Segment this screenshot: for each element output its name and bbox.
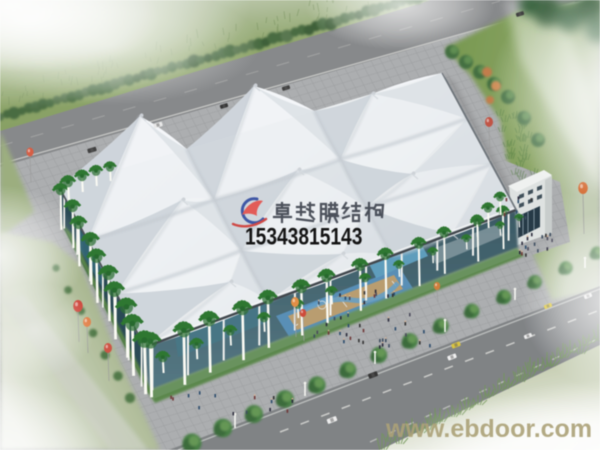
svg-text:15343815143: 15343815143 bbox=[245, 222, 362, 250]
svg-text:www.ebdoor.com: www.ebdoor.com bbox=[385, 415, 592, 443]
